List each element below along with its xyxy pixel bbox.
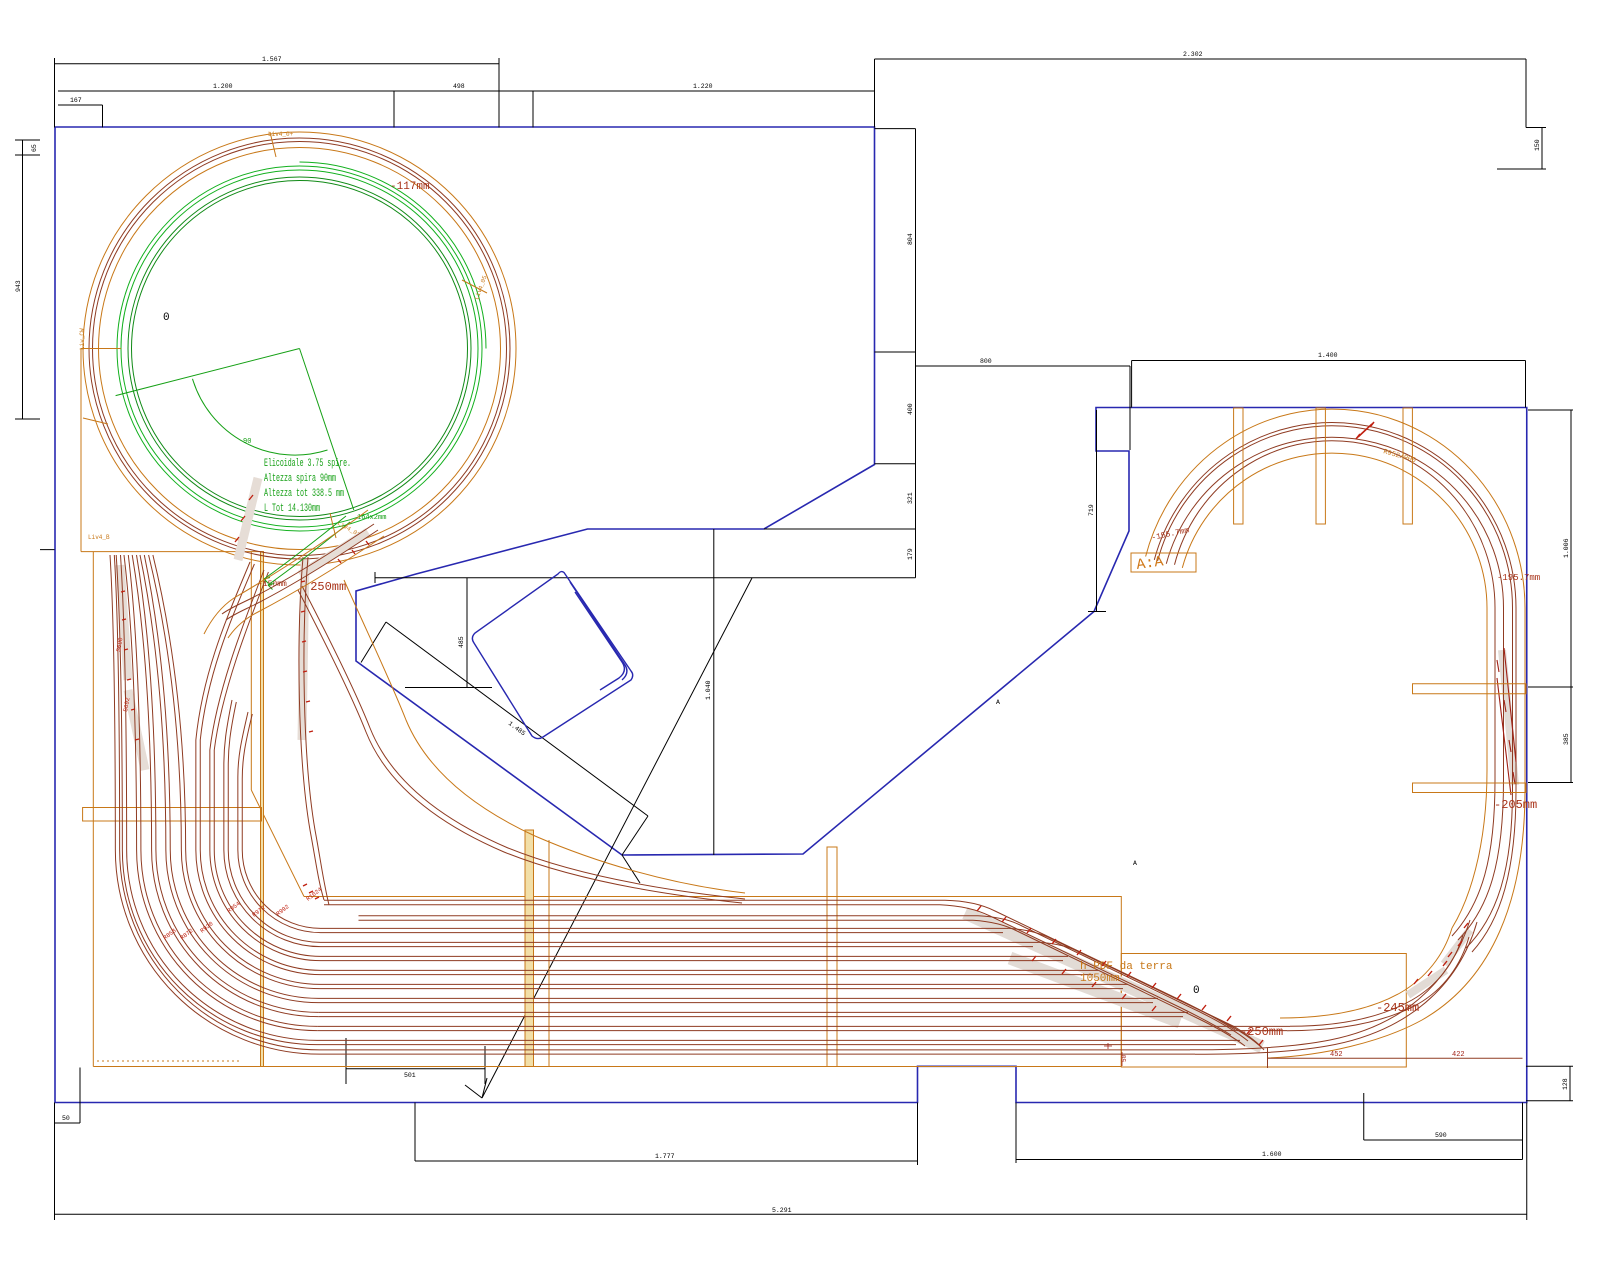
svg-text:Liv_CW: Liv_CW: [79, 328, 86, 350]
svg-text:Altezza tot 338.5 mm: Altezza tot 338.5 mm: [264, 488, 344, 500]
svg-text:2.302: 2.302: [1183, 51, 1203, 58]
svg-text:321: 321: [907, 492, 914, 504]
svg-text:-245mm: -245mm: [1376, 1001, 1419, 1015]
svg-text:452: 452: [1330, 1051, 1343, 1059]
svg-text:1.200: 1.200: [213, 83, 233, 90]
svg-text:1.777: 1.777: [655, 1153, 675, 1160]
svg-text:Liv4_0+: Liv4_0+: [268, 131, 294, 138]
svg-text:Elicoidale 3.75 spire.: Elicoidale 3.75 spire.: [264, 458, 351, 470]
svg-text:590: 590: [1435, 1132, 1447, 1139]
svg-text:719: 719: [1088, 504, 1095, 516]
svg-text:A: A: [996, 699, 1000, 706]
svg-text:-117mm: -117mm: [390, 181, 430, 193]
svg-text:65: 65: [31, 144, 38, 152]
svg-text:385: 385: [1563, 733, 1570, 745]
svg-text:5.291: 5.291: [772, 1207, 792, 1214]
svg-text:Altezza spira 90mm: Altezza spira 90mm: [264, 473, 336, 485]
svg-text:943: 943: [15, 280, 22, 292]
svg-text:1.040: 1.040: [705, 680, 712, 700]
svg-text:804: 804: [907, 233, 914, 245]
svg-text:400: 400: [907, 403, 914, 415]
svg-text:-250mm: -250mm: [1240, 1025, 1283, 1039]
svg-text:L Tot 14.130mm: L Tot 14.130mm: [264, 503, 320, 515]
svg-text:50: 50: [1121, 1054, 1128, 1062]
svg-text:179: 179: [907, 548, 914, 560]
svg-text:1.006: 1.006: [1563, 538, 1570, 558]
svg-text:0: 0: [1193, 985, 1200, 997]
svg-text:Liv4_B: Liv4_B: [88, 534, 110, 541]
svg-text:1.400: 1.400: [1318, 352, 1338, 359]
svg-text:485: 485: [458, 636, 465, 648]
svg-text:1.567: 1.567: [262, 56, 282, 63]
svg-text:800: 800: [980, 358, 992, 365]
svg-text:-195.7mm: -195.7mm: [1497, 573, 1540, 583]
svg-text:128: 128: [1562, 1078, 1569, 1090]
svg-text:501: 501: [404, 1072, 416, 1079]
svg-text:90: 90: [243, 438, 251, 446]
svg-text:1.600: 1.600: [1262, 1151, 1282, 1158]
svg-text:h PDF da terra: h PDF da terra: [1080, 961, 1173, 973]
svg-text:A: A: [1133, 860, 1137, 867]
svg-text:498: 498: [453, 83, 465, 90]
svg-text:167: 167: [70, 97, 82, 104]
svg-text:-250mm: -250mm: [303, 580, 346, 594]
svg-text:50: 50: [62, 1115, 70, 1122]
svg-text:150: 150: [1534, 139, 1541, 151]
svg-text:0: 0: [163, 312, 170, 324]
svg-text:-205mm: -205mm: [1494, 798, 1537, 812]
svg-text:422: 422: [1452, 1051, 1465, 1059]
svg-text:1.220: 1.220: [693, 83, 713, 90]
svg-text:1050mm: 1050mm: [1080, 973, 1120, 985]
